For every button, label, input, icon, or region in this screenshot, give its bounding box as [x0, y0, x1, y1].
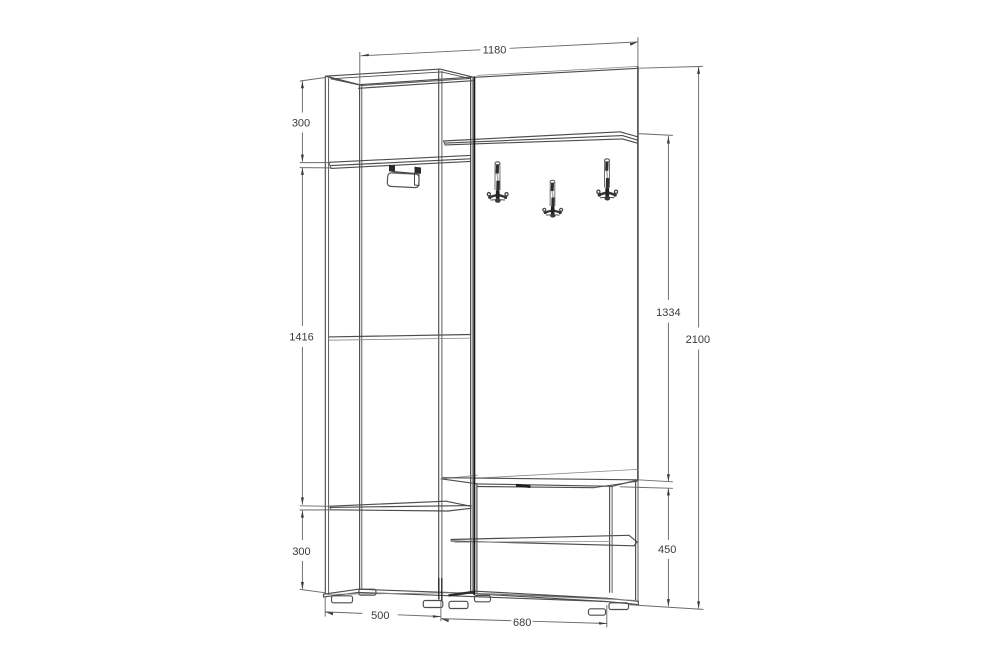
svg-text:300: 300 — [292, 118, 310, 130]
svg-text:1334: 1334 — [656, 307, 680, 319]
svg-text:680: 680 — [513, 617, 531, 629]
svg-text:300: 300 — [292, 546, 310, 558]
svg-text:500: 500 — [371, 610, 389, 622]
svg-text:2100: 2100 — [686, 334, 710, 346]
svg-text:450: 450 — [658, 544, 676, 556]
svg-text:1180: 1180 — [483, 45, 507, 57]
svg-text:1416: 1416 — [289, 332, 313, 344]
